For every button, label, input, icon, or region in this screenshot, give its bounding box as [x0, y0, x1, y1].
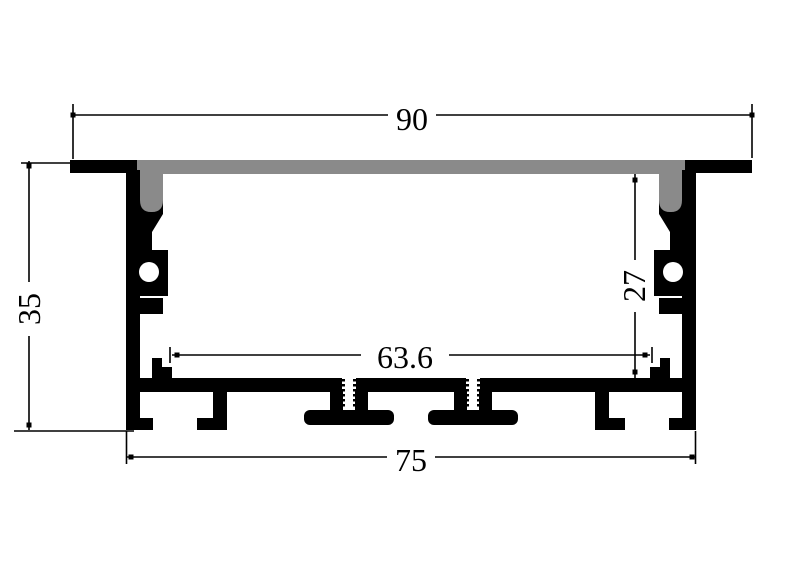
arrow-marker	[750, 113, 755, 118]
base-plate-segment	[356, 378, 411, 392]
arrow-marker	[27, 164, 32, 169]
arrow-marker	[71, 113, 76, 118]
arrow-marker	[129, 455, 134, 460]
arrow-marker	[633, 370, 638, 375]
dimension-label-overall-width: 90	[396, 101, 428, 137]
inner-ledge	[140, 298, 163, 314]
diffuser-plate	[135, 160, 687, 174]
profile-cross-section-drawing: 90 35 27 63.6 75	[0, 0, 797, 574]
dimension-label-inner-height: 27	[616, 270, 652, 302]
arrow-marker	[27, 423, 32, 428]
mounting-leg-foot	[197, 418, 227, 430]
mounting-leg-stem	[213, 392, 227, 418]
arrow-marker	[690, 455, 695, 460]
dimension-label-inner-width: 63.6	[377, 339, 433, 375]
dimension-label-overall-height: 35	[11, 293, 47, 325]
wall-bump	[140, 230, 152, 252]
screw-boss-stem	[355, 390, 368, 410]
screw-boss-stem	[330, 390, 343, 410]
screw-boss-foot	[304, 410, 394, 425]
arrow-marker	[643, 353, 648, 358]
arrow-marker	[175, 353, 180, 358]
dimension-label-base-width: 75	[395, 442, 427, 478]
diffuser-clip-tab	[140, 174, 163, 212]
base-plate-segment	[136, 378, 342, 392]
drawing-canvas: 90 35 27 63.6 75	[0, 0, 797, 574]
wall-foot	[126, 418, 153, 430]
arrow-marker	[633, 178, 638, 183]
clip-hook-notch	[139, 262, 159, 282]
